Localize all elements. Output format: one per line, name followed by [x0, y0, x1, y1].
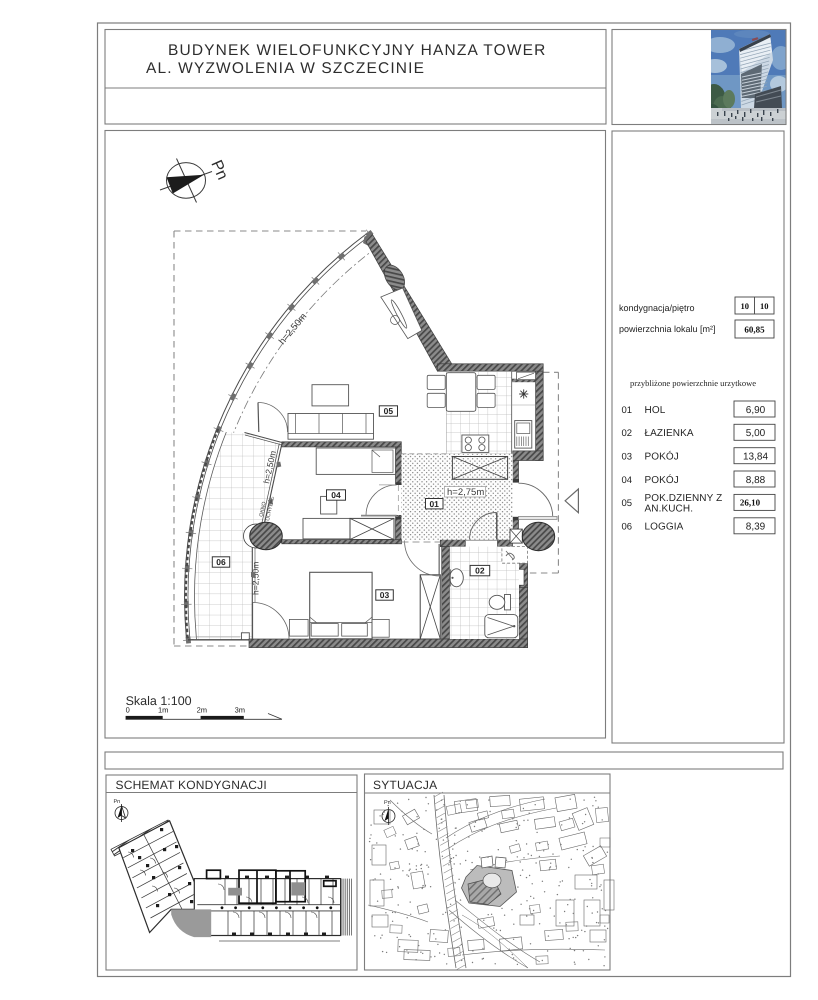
svg-text:Pn: Pn: [114, 799, 121, 805]
svg-text:10: 10: [760, 301, 769, 311]
svg-text:04: 04: [331, 490, 341, 500]
svg-text:AN.KUCH.: AN.KUCH.: [645, 504, 694, 515]
svg-text:SCHEMAT KONDYGNACJI: SCHEMAT KONDYGNACJI: [116, 778, 267, 792]
svg-text:h=2,75m: h=2,75m: [447, 487, 484, 498]
svg-text:POKÓJ: POKÓJ: [645, 451, 679, 463]
svg-text:8,39: 8,39: [746, 522, 766, 533]
svg-text:8,88: 8,88: [746, 475, 766, 486]
svg-text:06: 06: [216, 557, 226, 567]
svg-text:Pn: Pn: [207, 158, 230, 183]
svg-text:5,00: 5,00: [746, 428, 766, 439]
svg-text:HOL: HOL: [645, 405, 666, 416]
svg-text:SYTUACJA: SYTUACJA: [373, 778, 437, 792]
svg-text:10: 10: [740, 301, 749, 311]
svg-text:LOGGIA: LOGGIA: [645, 522, 684, 533]
svg-text:przybliżone powierzchnie urzy: przybliżone powierzchnie urzytkowe: [630, 378, 756, 388]
svg-text:ŁAZIENKA: ŁAZIENKA: [645, 428, 694, 439]
svg-text:02: 02: [475, 566, 485, 576]
svg-text:05: 05: [384, 406, 394, 416]
svg-text:04: 04: [622, 475, 633, 486]
svg-text:3m: 3m: [235, 706, 245, 715]
svg-text:13,84: 13,84: [743, 452, 768, 463]
svg-text:powierzchnia lokalu [m²]: powierzchnia lokalu [m²]: [619, 324, 716, 334]
svg-text:05: 05: [622, 498, 633, 509]
svg-text:kondygnacja/piętro: kondygnacja/piętro: [619, 303, 695, 313]
svg-text:60,85: 60,85: [744, 325, 765, 335]
svg-text:1m: 1m: [158, 706, 168, 715]
svg-text:0: 0: [126, 706, 130, 715]
svg-text:06: 06: [622, 522, 633, 533]
svg-text:AL. WYZWOLENIA W SZCZECINIE: AL. WYZWOLENIA W SZCZECINIE: [146, 60, 425, 77]
svg-text:POK.DZIENNY Z: POK.DZIENNY Z: [645, 493, 723, 504]
svg-text:26,10: 26,10: [740, 498, 761, 508]
svg-text:03: 03: [622, 452, 633, 463]
svg-text:03: 03: [380, 590, 390, 600]
svg-text:BUDYNEK WIELOFUNKCYJNY HANZA T: BUDYNEK WIELOFUNKCYJNY HANZA TOWER: [168, 42, 546, 59]
svg-text:Pn: Pn: [384, 800, 391, 806]
svg-text:6,90: 6,90: [746, 405, 766, 416]
svg-text:01: 01: [622, 405, 633, 416]
svg-text:POKÓJ: POKÓJ: [645, 474, 679, 486]
svg-text:02: 02: [622, 428, 633, 439]
svg-text:2m: 2m: [197, 706, 207, 715]
svg-text:01: 01: [429, 499, 439, 509]
